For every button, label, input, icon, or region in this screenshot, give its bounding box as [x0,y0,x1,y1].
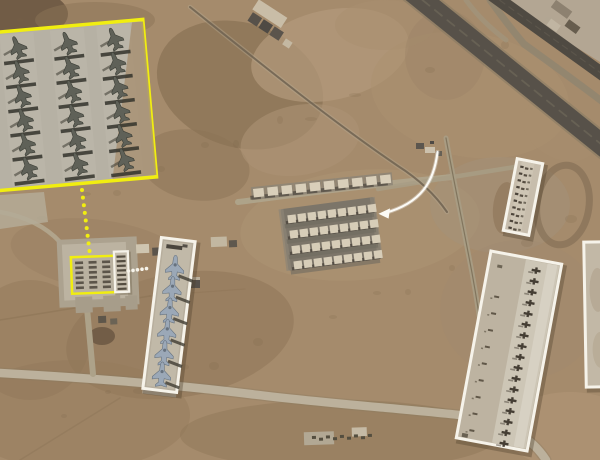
yellow-leader-dot [86,234,90,238]
white-leader-dot [127,269,131,273]
aircraft-shelter [334,177,351,192]
aircraft-shelter [278,183,295,198]
yellow-leader-dot [80,188,84,192]
yellow-leader-dot [82,203,86,207]
yellow-leader-dot [81,196,85,200]
aircraft-shelter [249,186,266,201]
white-leader-dot [136,268,140,272]
yellow-leader-dot [85,226,89,230]
east-edge-annotation-box [584,242,600,391]
shelter-block [278,197,383,275]
yellow-leader-dot [84,219,88,223]
inset-magnified-view [0,19,157,192]
yellow-leader-dot [88,249,92,253]
white-leader-dot [140,267,144,271]
satellite-image [0,0,600,460]
white-leader-dot [145,267,149,271]
yellow-site-box [71,256,116,294]
aircraft-shelter [362,174,379,189]
aircraft-shelter [306,180,323,195]
site-annotation-boxes [71,251,131,294]
yellow-leader-dot [83,211,87,215]
aircraft-shelter [320,178,337,193]
aircraft-shelter [292,181,309,196]
aircraft-shelter [376,172,393,187]
aircraft-shelter [263,184,280,199]
yellow-leader-dot [87,241,91,245]
white-leader-dot [131,269,135,273]
airbase-scene [0,0,600,460]
aircraft-shelter [348,175,365,190]
yellow-inset-box [0,19,157,192]
